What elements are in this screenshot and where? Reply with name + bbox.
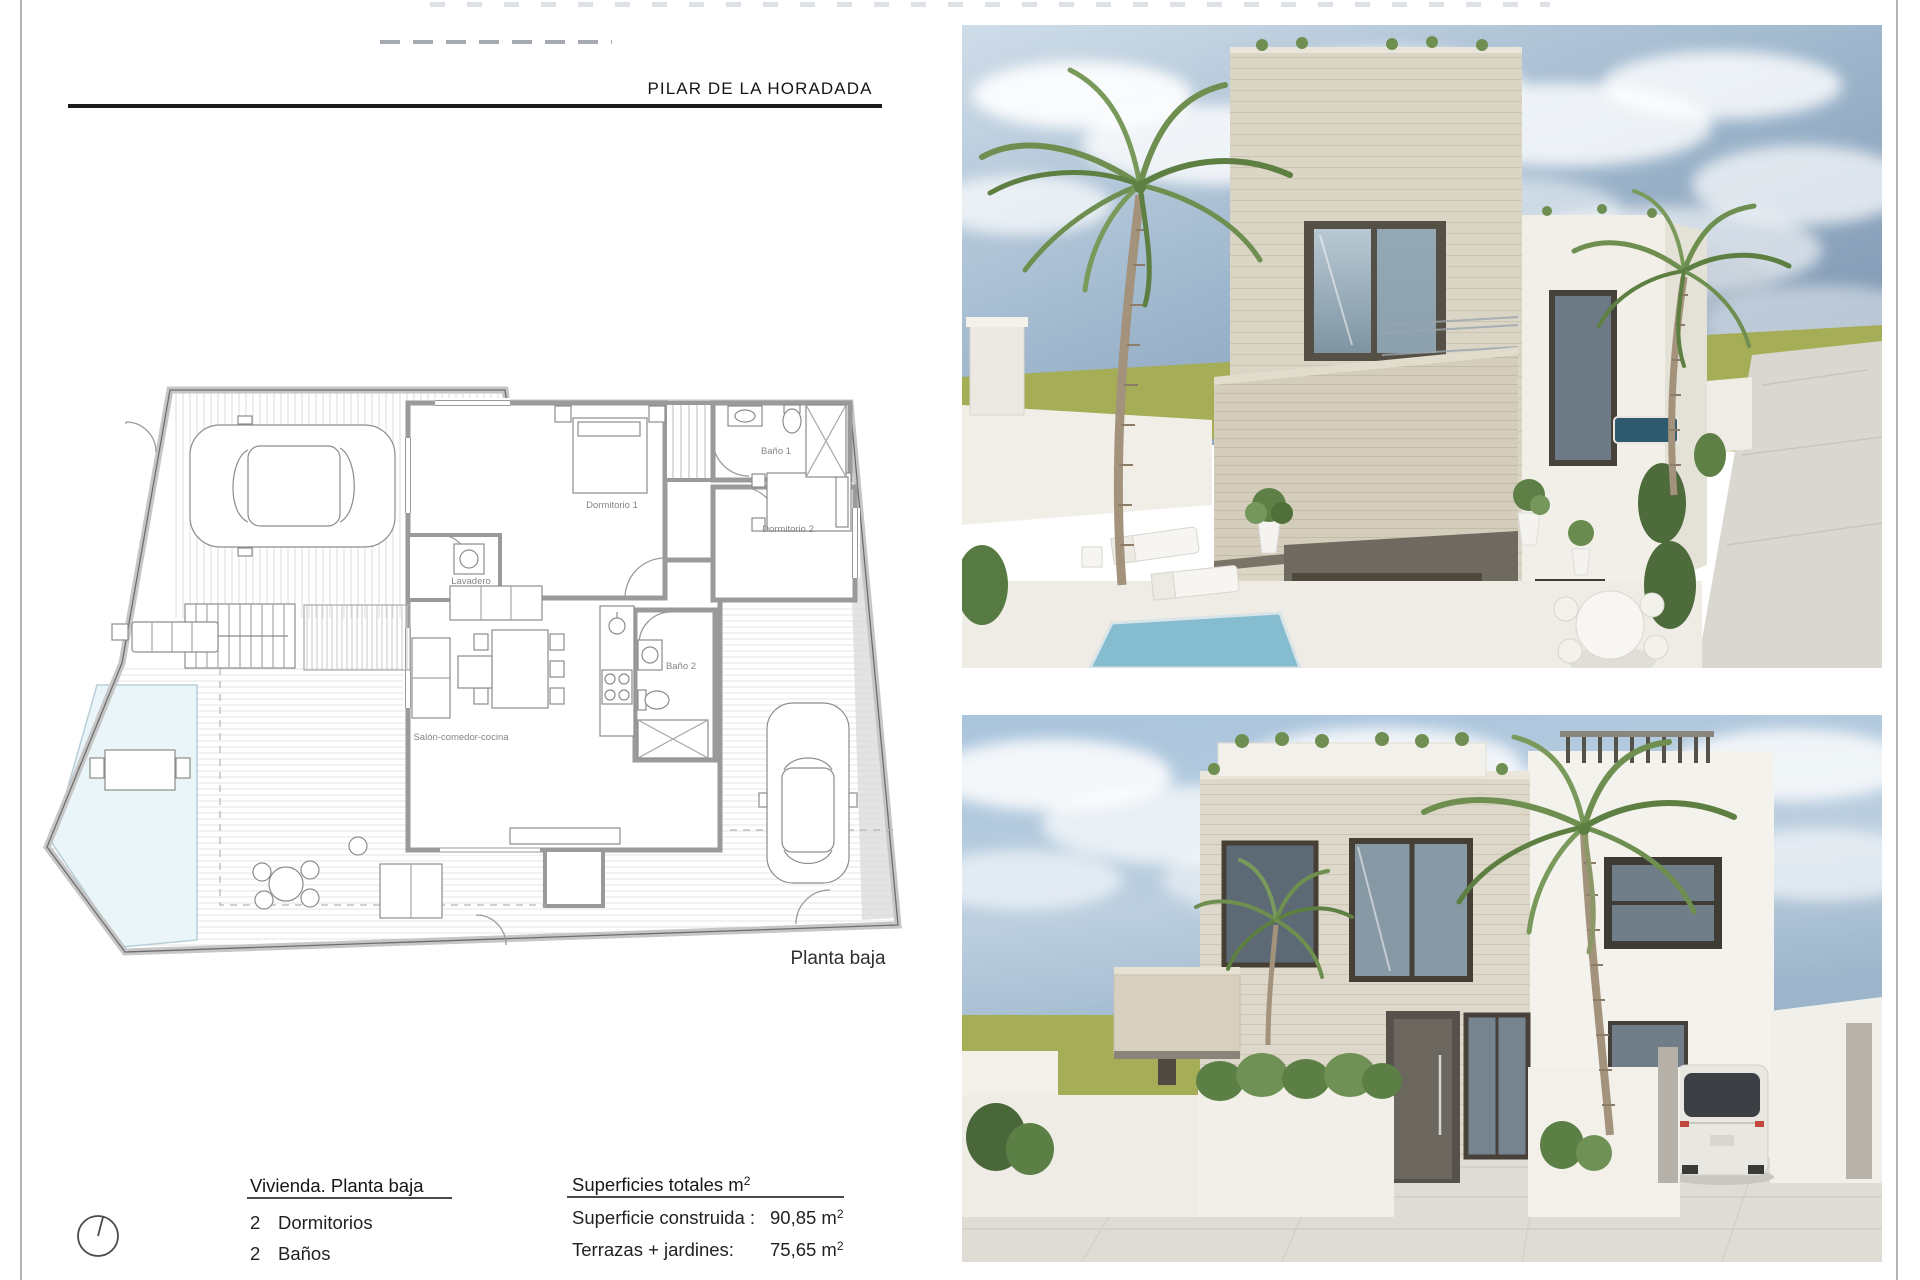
carport-pillar [1658, 1047, 1678, 1183]
surfaces-heading-underline [567, 1196, 844, 1198]
window [1352, 841, 1470, 979]
bathrooms-label: Baños [278, 1243, 330, 1264]
room-label-lavadero: Lavadero [451, 576, 491, 587]
render-front-view [962, 715, 1882, 1262]
page-border-left [20, 0, 22, 1280]
dwelling-bathrooms: 2Baños [250, 1243, 330, 1265]
pool-edge [1090, 613, 1300, 668]
car-top-view [759, 703, 857, 883]
surfaces-heading: Superficies totales m2 [572, 1174, 750, 1196]
dwelling-heading: Vivienda. Planta baja [250, 1175, 423, 1197]
surface-built-row: Superficie construida :90,85 m2 [572, 1207, 844, 1229]
bedrooms-label: Dormitorios [278, 1212, 373, 1233]
bedrooms-count: 2 [250, 1212, 278, 1234]
gate-pillar [1846, 1023, 1872, 1179]
scan-artifact-dashes [430, 2, 1550, 7]
wall-pillar-cap [966, 317, 1028, 327]
washing-machine [454, 544, 484, 574]
surface-built-label: Superficie construida : [572, 1207, 770, 1229]
car-rear-view [1670, 1065, 1774, 1185]
squared-sup: 2 [837, 1239, 844, 1253]
room-label-salon: Salón-comedor-cocina [413, 732, 509, 743]
dwelling-bedrooms: 2Dormitorios [250, 1212, 373, 1234]
room-label-dormitorio1: Dormitorio 1 [586, 500, 638, 511]
plan-sheet-page: PILAR DE LA HORADADA [0, 0, 1920, 1280]
plan-caption: Planta baja [790, 948, 886, 969]
glass-door [1466, 1015, 1528, 1157]
pool [52, 685, 197, 947]
room-label-bano2: Baño 2 [666, 661, 696, 672]
boundary-wall [962, 405, 1212, 525]
room-label-dormitorio2: Dormitorio 2 [762, 524, 814, 535]
bed [752, 473, 851, 531]
render-corner-view [962, 25, 1882, 668]
wall-pillar [970, 323, 1024, 415]
roof-setback [1218, 743, 1486, 777]
entrance-door [1386, 1011, 1460, 1183]
surface-terrace-label: Terrazas + jardines: [572, 1239, 770, 1261]
scan-artifact-dashes [380, 40, 612, 44]
porch-hatch [304, 605, 410, 670]
car-top-view [190, 416, 395, 556]
floor-plan: Dormitorio 1 Baño 1 Dormitorio 2 Lavader… [40, 378, 920, 978]
title-underline [68, 104, 882, 108]
room-label-bano1: Baño 1 [761, 446, 791, 457]
squared-sup: 2 [837, 1207, 844, 1221]
surface-built-value: 90,85 m [770, 1207, 837, 1228]
surface-terrace-value: 75,65 m [770, 1239, 837, 1260]
bathrooms-count: 2 [250, 1243, 278, 1265]
north-circle-icon [76, 1213, 122, 1259]
squared-sup: 2 [744, 1174, 751, 1188]
upper-window [1304, 221, 1446, 361]
dwelling-heading-underline [247, 1197, 452, 1199]
kitchen [600, 606, 634, 736]
page-border-right [1896, 0, 1898, 1280]
surface-terrace-row: Terrazas + jardines:75,65 m2 [572, 1239, 844, 1261]
planter-wall [1198, 1087, 1394, 1217]
page-title: PILAR DE LA HORADADA [600, 79, 920, 99]
